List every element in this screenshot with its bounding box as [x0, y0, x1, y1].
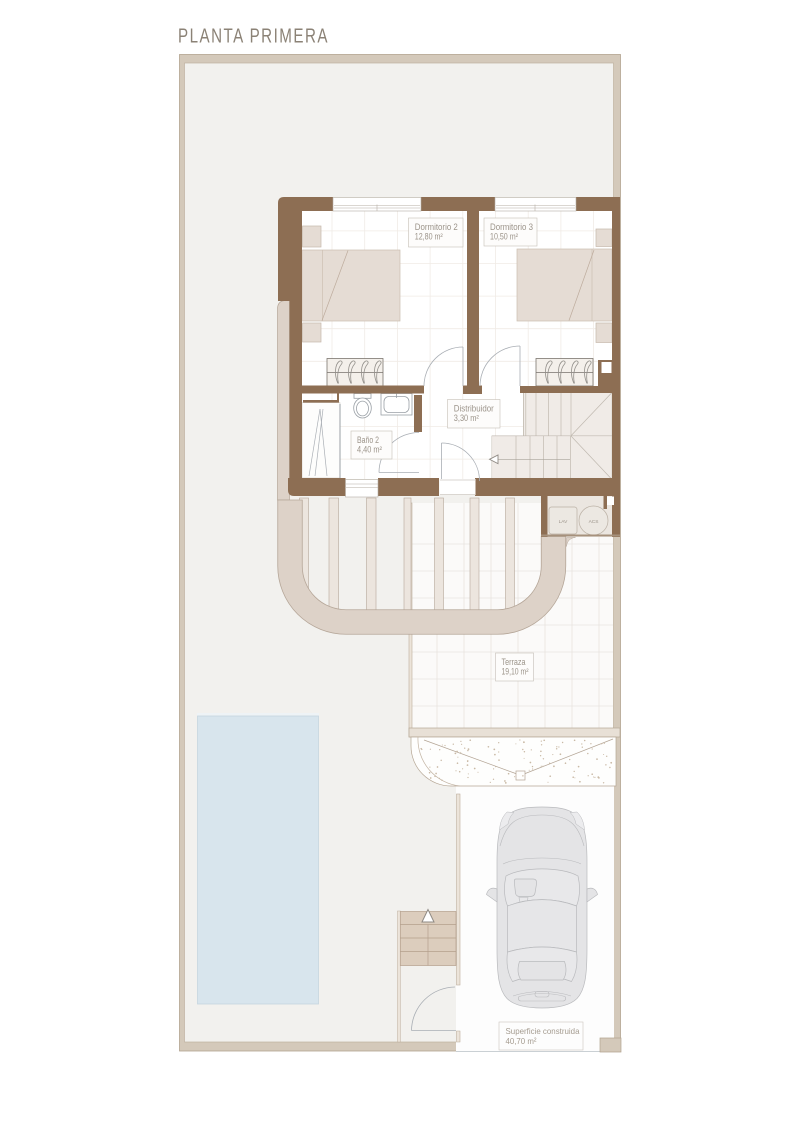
- svg-text:ACS: ACS: [589, 519, 599, 525]
- svg-text:Superficie construida: Superficie construida: [506, 1026, 580, 1036]
- svg-text:4,40 m²: 4,40 m²: [357, 445, 382, 455]
- svg-text:12,80 m²: 12,80 m²: [415, 232, 443, 242]
- svg-text:19,10 m²: 19,10 m²: [502, 667, 529, 677]
- svg-text:Dormitorio 2: Dormitorio 2: [415, 222, 458, 232]
- svg-text:PLANTA PRIMERA: PLANTA PRIMERA: [178, 25, 329, 48]
- svg-text:Baño 2: Baño 2: [357, 435, 379, 445]
- svg-text:3,30 m²: 3,30 m²: [454, 413, 479, 423]
- svg-text:40,70 m²: 40,70 m²: [506, 1036, 537, 1046]
- svg-text:Dormitorio 3: Dormitorio 3: [490, 222, 533, 232]
- svg-text:Distribuidor: Distribuidor: [454, 404, 494, 414]
- svg-text:LAV: LAV: [559, 519, 569, 525]
- svg-text:10,50 m²: 10,50 m²: [490, 232, 518, 242]
- svg-text:Terraza: Terraza: [502, 657, 526, 667]
